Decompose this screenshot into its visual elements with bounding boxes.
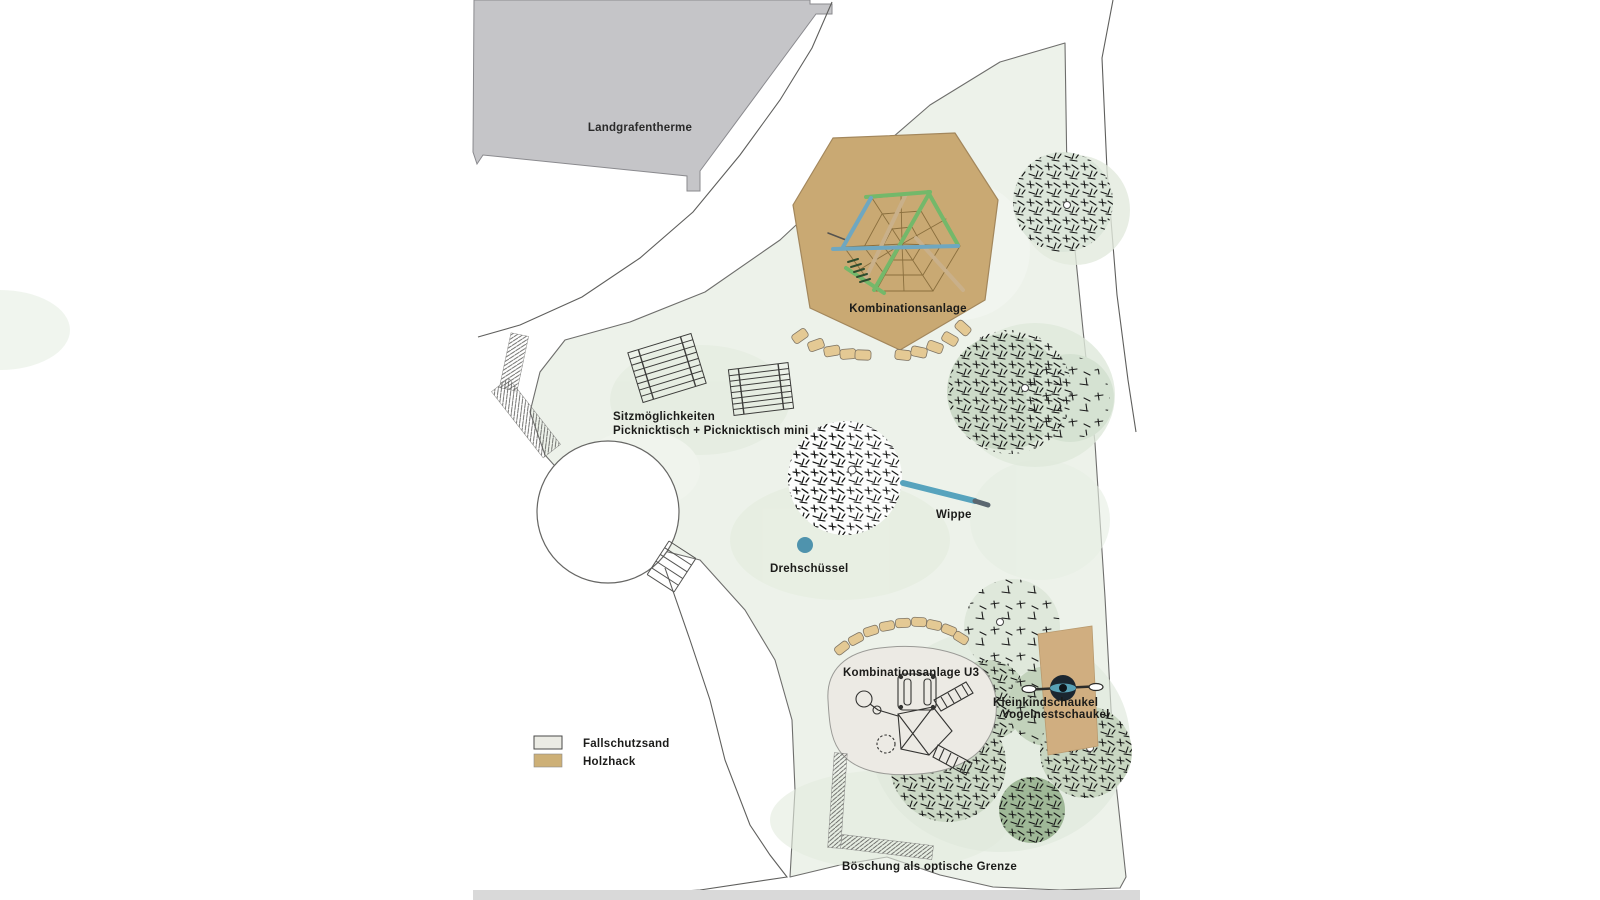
wippe-label: Wippe (936, 509, 972, 521)
vogelnestschaukel-label: Vogelnestschaukel (1002, 709, 1110, 721)
building-label: Landgrafentherme (588, 122, 692, 134)
seating-label-line1: Sitzmöglichkeiten (613, 411, 715, 423)
sand-surface (828, 646, 997, 774)
playground-site-plan: Landgrafentherme (0, 0, 1600, 900)
kleinkindschaukel-label: Kleinkindschaukel (993, 697, 1098, 709)
kombinationsanlage-label: Kombinationsanlage (849, 303, 967, 315)
bottom-strip (473, 890, 1140, 900)
legend-label-holzhack: Holzhack (583, 756, 636, 768)
u3-label: Kombinationsanlage U3 (843, 667, 979, 679)
site-plan-svg: Landgrafentherme (0, 0, 1600, 900)
boeschung-label: Böschung als optische Grenze (842, 861, 1017, 873)
legend-label-fallschutzsand: Fallschutzsand (583, 738, 670, 750)
legend-swatch-holzhack (534, 754, 562, 767)
tree-center (788, 421, 902, 535)
building-landgrafentherme: Landgrafentherme (473, 0, 832, 191)
tree-trunk (848, 466, 856, 474)
legend: Fallschutzsand Holzhack (534, 736, 670, 768)
building-outline (473, 0, 832, 191)
seating-label-line2: Picknicktisch + Picknicktisch mini (613, 425, 808, 437)
drehschuessel-label: Drehschüssel (770, 563, 848, 575)
legend-swatch-fallschutzsand (534, 736, 562, 749)
